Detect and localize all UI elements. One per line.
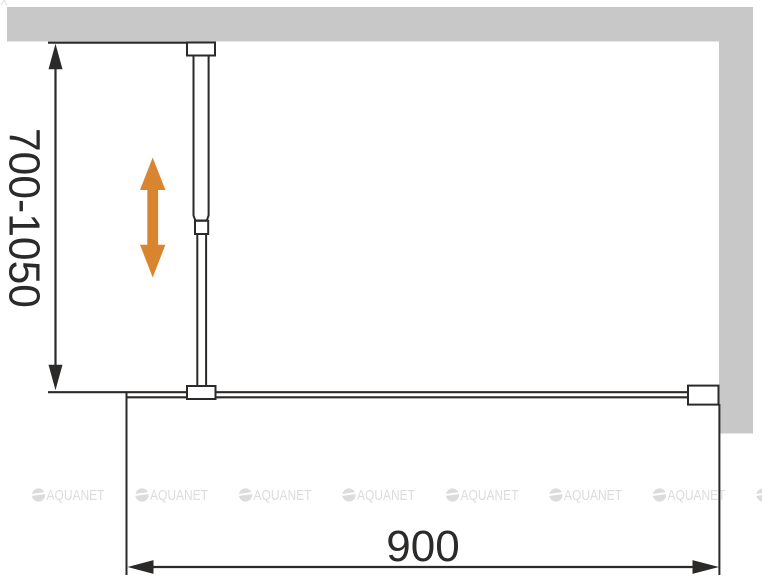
svg-text:900: 900 (386, 522, 459, 571)
svg-text:700-1050: 700-1050 (0, 128, 49, 308)
svg-text:AQUANET: AQUANET (461, 488, 519, 504)
svg-text:AQUANET: AQUANET (150, 488, 208, 504)
svg-text:AQUANET: AQUANET (254, 488, 312, 504)
svg-text:AQUANET: AQUANET (47, 488, 105, 504)
svg-text:AQUANET: AQUANET (668, 488, 726, 504)
svg-text:AQUANET: AQUANET (357, 488, 415, 504)
svg-text:AQUANET: AQUANET (564, 488, 622, 504)
